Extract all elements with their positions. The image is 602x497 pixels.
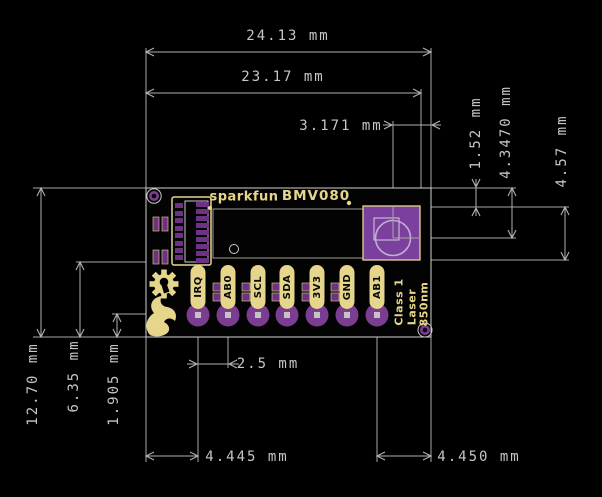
pin1-dot	[208, 206, 212, 210]
pcb-board	[146, 188, 432, 337]
silk-brand-text: sparkfun	[209, 190, 278, 205]
pin-label-irq: IRQ	[191, 265, 206, 309]
dim-left-to-first-pin: 4.445 mm	[205, 449, 288, 465]
pin-label-ab0: AB0	[221, 265, 236, 309]
dim-board-height: 12.70 mm	[25, 342, 41, 425]
dim-pin-pitch: 2.5 mm	[237, 356, 300, 372]
laser-class-line1: Class 1	[393, 278, 406, 325]
dim-inner-width: 23.17 mm	[241, 69, 324, 85]
dim-sensor-height: 4.57 mm	[554, 114, 570, 187]
dim-laser-from-right: 3.171 mm	[299, 118, 382, 134]
pin-label-sda: SDA	[280, 265, 295, 309]
pcb-dimension-drawing: sparkfun BMV080 Class 1 Laser 850nm IRQ …	[0, 0, 602, 497]
silk-model-text: BMV080	[282, 188, 350, 204]
pin-label-ab1: AB1	[370, 265, 385, 309]
dim-last-pin-to-right: 4.450 mm	[437, 449, 520, 465]
pin-label-gnd: GND	[340, 265, 355, 309]
dim-connector-centerline: 6.35 mm	[66, 339, 82, 412]
laser-class-line3: 850nm	[418, 282, 431, 327]
dim-laser-center-offset: 4.3470 mm	[498, 85, 514, 179]
pin-label-3v3: 3V3	[310, 265, 325, 309]
dim-sensor-top-offset: 1.52 mm	[468, 96, 484, 169]
sensor-aperture	[363, 206, 420, 260]
sparkfun-gear-logo	[150, 270, 179, 299]
dim-overall-width: 24.13 mm	[246, 28, 329, 44]
pin-label-scl: SCL	[251, 265, 266, 309]
dim-pin-row-offset: 1.905 mm	[106, 342, 122, 425]
